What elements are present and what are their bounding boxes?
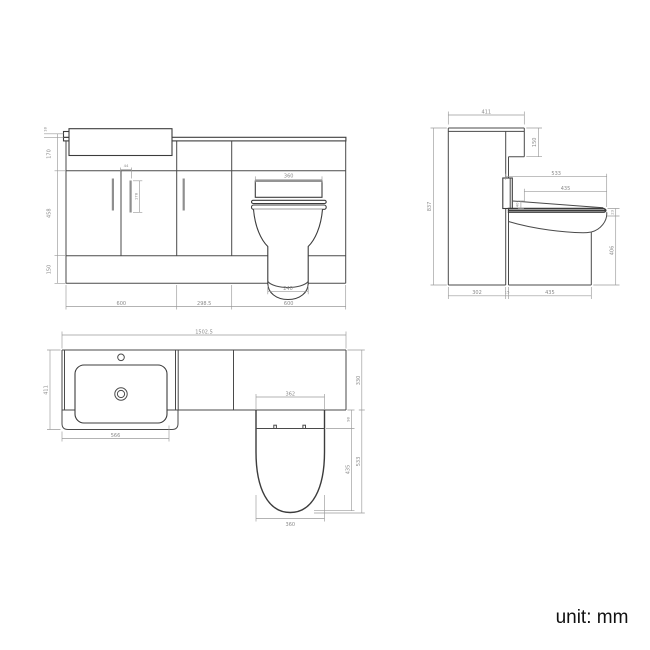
tap-hole [118,354,125,361]
toilet-lid-front [252,200,327,203]
plan-right-outer-chain [314,350,365,513]
side-elevation-view: 411 150 837 533 435 40 23 406 302 15 435 [427,109,619,299]
dim-height-837: 837 [427,202,433,212]
flush-flap-side [503,178,513,209]
dim-height-170: 170 [46,149,52,159]
toilet-seat-front [252,205,327,209]
seat-hinge-right [303,425,306,428]
dim-width-298: 298.5 [197,301,211,307]
basin-front [69,129,172,156]
flush-flap-front [255,181,322,197]
door-handle-right [130,181,132,213]
dim-seat-435-plan: 435 [345,465,351,475]
dim-handle-178: 178 [134,192,139,200]
dim-width-600-right: 600 [284,301,294,307]
dim-hinge-98: 98 [345,417,350,422]
dim-total-1502: 1502.5 [195,329,213,335]
side-bottom-dim-chain [448,287,591,299]
dim-pan-435: 435 [545,290,555,296]
dim-height-150: 150 [46,265,52,275]
seat-hinge-left [274,425,277,428]
dim-flap-360: 360 [284,174,294,180]
page: 18 170 458 150 360 240 600 298.5 600 44 … [0,0,650,650]
dim-pan-533: 533 [356,457,362,467]
seat-lid-slope [513,201,603,208]
dim-handle-44: 44 [124,163,129,168]
dim-base-302: 302 [472,290,482,296]
door-handle-mid-unit [183,179,185,211]
front-elevation-view: 18 170 458 150 360 240 600 298.5 600 44 … [43,127,346,310]
dim-band-330: 330 [356,376,362,386]
dim-pan-406: 406 [609,246,615,256]
dim-basin-566: 566 [111,433,121,439]
unit-label: unit: mm [556,607,629,628]
dim-depth-411-plan: 411 [44,385,50,395]
side-cabinet-outline [448,128,591,285]
technical-drawing: 18 170 458 150 360 240 600 298.5 600 44 … [0,0,650,650]
dim-drop-150: 150 [532,138,538,148]
plan-view: 1502.5 411 566 362 360 98 435 330 533 [44,329,365,527]
dim-wedge-40: 40 [515,202,520,207]
door-handle-left [112,179,114,211]
dim-width-600-left: 600 [117,301,127,307]
dim-lip-23: 23 [609,209,614,214]
basin-bowl-plan [75,365,167,423]
dim-seat-435: 435 [561,186,571,192]
dim-base-240: 240 [283,286,293,292]
plan-right-inner-chain [314,410,355,511]
side-right-dim-chain [593,209,619,286]
dim-seat-362: 362 [286,391,296,397]
dim-seat-533: 533 [551,171,561,177]
dim-gap-15: 15 [505,290,510,295]
dim-depth-411: 411 [482,109,492,115]
toilet-pan-plan [256,410,325,513]
dim-height-458: 458 [46,208,52,218]
dim-thickness-18: 18 [43,127,48,132]
toilet-seat-side [508,209,606,213]
dim-front-360: 360 [286,522,296,528]
toilet-pan-side [509,212,607,285]
